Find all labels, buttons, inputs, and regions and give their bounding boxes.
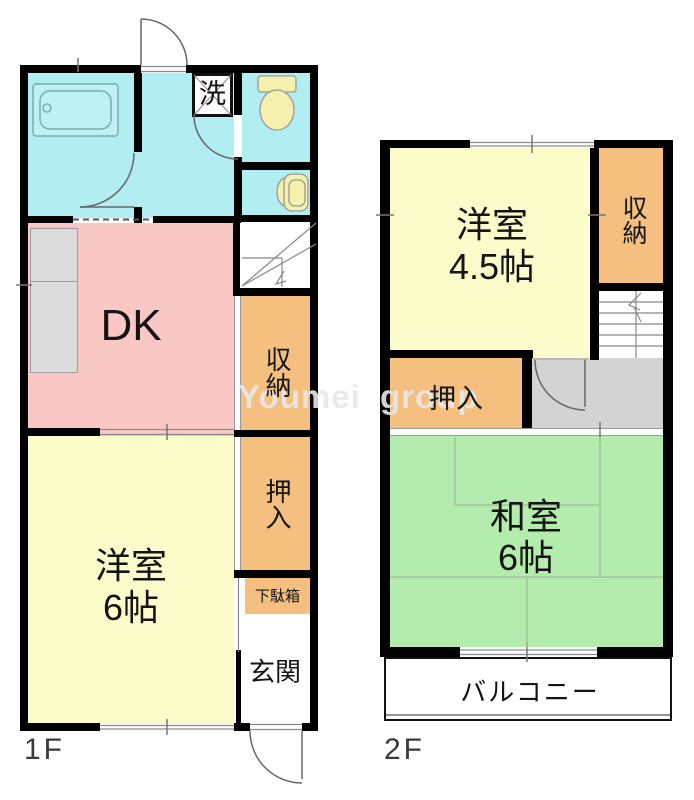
- floor-1-label: 1F: [24, 733, 65, 767]
- oshiire-2f-label: 押入: [396, 377, 516, 416]
- oshiire-1f-label: 押入: [258, 466, 296, 542]
- room-name: 洋室: [392, 204, 592, 246]
- door-arc-genkan: [250, 731, 302, 783]
- door-arc-washroom: [194, 115, 238, 159]
- room-name: 洋室: [31, 545, 231, 587]
- laundry-label: 洗: [192, 73, 233, 117]
- door-arc-2f-room: [535, 360, 585, 410]
- storage-1f-label: 収納: [258, 334, 296, 410]
- basin-icon: [277, 174, 308, 211]
- floorplan-canvas: 洗 DK 収納 押入 洋室 6帖 下駄箱 玄関 1F 洋室 4.5帖 収納 押入…: [0, 0, 694, 800]
- toilet-icon: [258, 76, 296, 130]
- stairs-1f-icon: [242, 223, 316, 287]
- room-size: 6帖: [426, 537, 626, 578]
- room-size: 4.5帖: [392, 246, 592, 288]
- room-name: 和室: [426, 496, 626, 537]
- western-room-1f-label: 洋室 6帖: [31, 545, 231, 629]
- storage-2f-label: 収納: [614, 182, 652, 258]
- western-room-2f-label: 洋室 4.5帖: [392, 204, 592, 288]
- stairs-2f-icon: [599, 291, 663, 358]
- balcony-label: バルコニー: [430, 672, 630, 709]
- door-arc-top-entry: [141, 19, 187, 65]
- door-arc-bathroom: [80, 153, 134, 207]
- room-size: 6帖: [31, 587, 231, 629]
- japanese-room-2f-label: 和室 6帖: [426, 496, 626, 578]
- watermark-left: Youmei: [238, 378, 361, 416]
- getabako-label: 下駄箱: [245, 580, 310, 614]
- genkan-label: 玄関: [240, 652, 310, 689]
- floor-2-label: 2F: [384, 733, 425, 767]
- dk-label: DK: [31, 301, 231, 351]
- bathtub-icon: [33, 84, 118, 136]
